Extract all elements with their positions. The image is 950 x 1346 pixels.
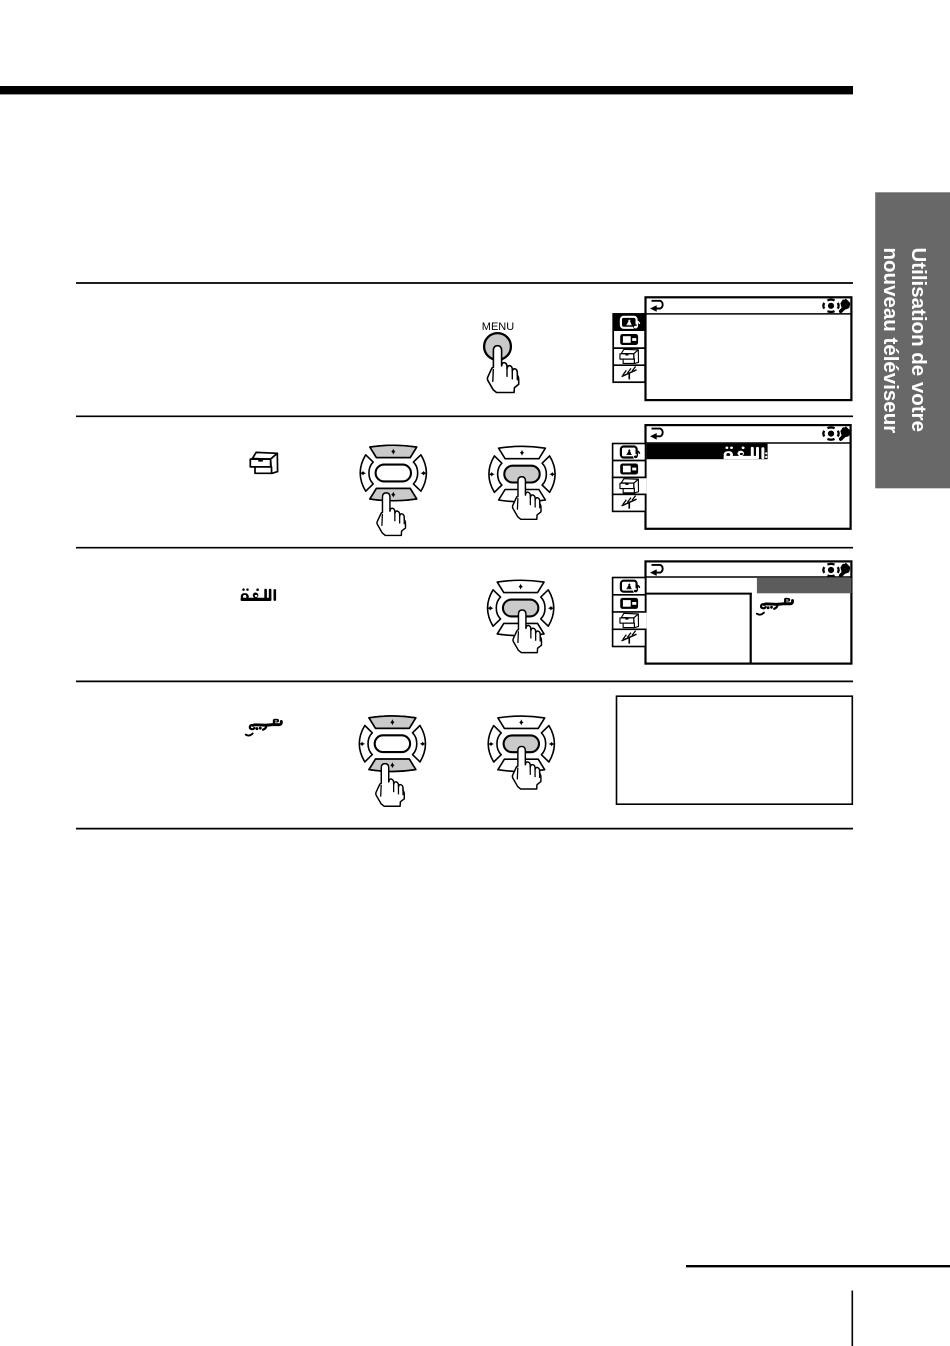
svg-text:nouveau téléviseur: nouveau téléviseur: [879, 248, 902, 434]
svg-text:MENU: MENU: [482, 321, 514, 333]
svg-text:Utilisation de votre: Utilisation de votre: [907, 248, 930, 433]
